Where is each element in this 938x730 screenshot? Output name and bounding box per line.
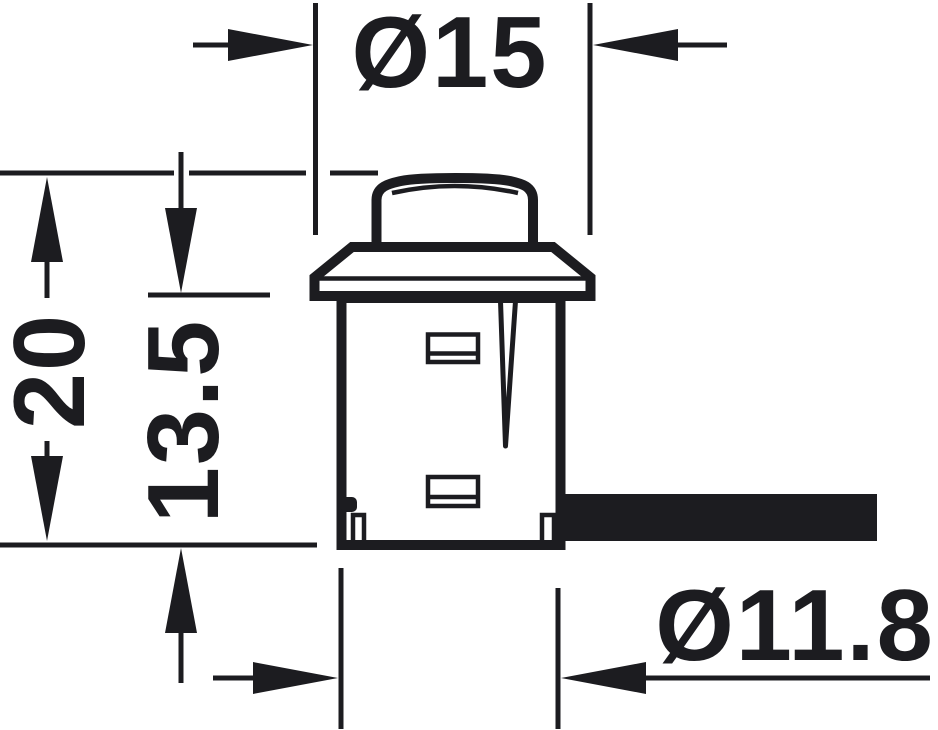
dimension-label-body-height: 13.5 — [128, 319, 240, 524]
button-cap — [377, 178, 534, 247]
arrowhead-up-pointing — [165, 548, 197, 633]
dimension-label-body-diameter: Ø11.8 — [655, 570, 935, 682]
upper-terminal — [428, 335, 478, 363]
arrowhead-left-pointing — [561, 662, 646, 694]
arrowhead-right-pointing — [228, 29, 313, 61]
arrowhead-down-pointing — [31, 456, 63, 541]
lower-terminal-frame — [428, 477, 478, 506]
cable — [558, 494, 877, 541]
arrowhead-up-pointing — [31, 177, 63, 262]
dimension-label-head-diameter: Ø15 — [352, 0, 549, 109]
drawing-canvas: Ø15 20 13.5 — [0, 0, 938, 730]
arrowhead-right-pointing — [253, 662, 338, 694]
pushbutton-side-view — [315, 178, 878, 545]
dimension-body-diameter: Ø11.8 — [213, 568, 935, 729]
dimension-label-overall-height: 20 — [0, 313, 106, 429]
arrowhead-down-pointing — [165, 208, 197, 293]
dimension-body-height: 13.5 — [128, 152, 270, 683]
flange — [315, 247, 591, 296]
housing-left-step — [341, 497, 357, 512]
lower-terminal — [428, 477, 478, 506]
upper-terminal-frame — [428, 335, 478, 363]
arrowhead-left-pointing — [593, 29, 678, 61]
technical-drawing: Ø15 20 13.5 — [0, 0, 938, 730]
